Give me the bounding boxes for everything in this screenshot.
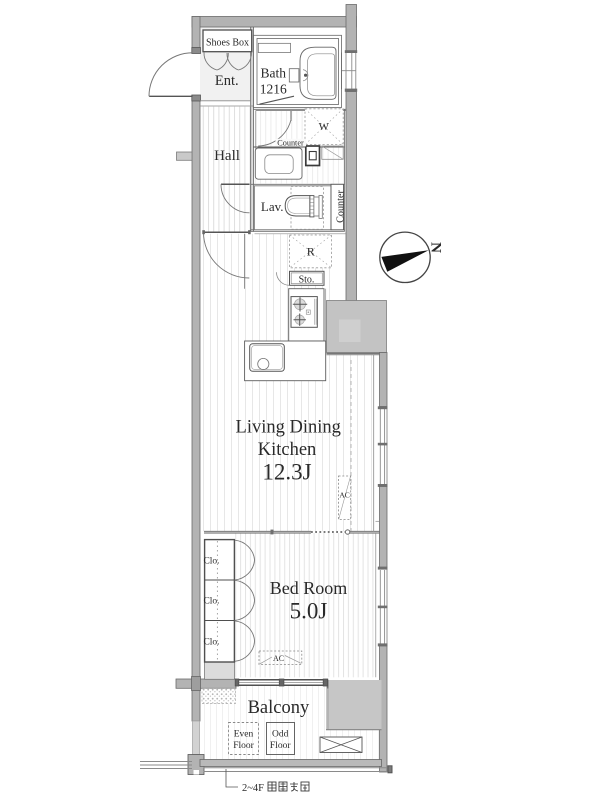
svg-text:AC: AC (273, 654, 284, 663)
svg-text:Even: Even (234, 730, 254, 740)
svg-text:2~4F: 2~4F (242, 783, 264, 794)
svg-text:AC: AC (339, 491, 349, 500)
svg-text:12.3J: 12.3J (262, 460, 311, 485)
svg-text:Balcony: Balcony (248, 698, 310, 718)
svg-text:Lav.: Lav. (261, 199, 284, 214)
svg-text:Hall: Hall (214, 148, 240, 164)
svg-text:Living Dining: Living Dining (236, 418, 341, 438)
svg-text:Ent.: Ent. (215, 73, 239, 89)
svg-text:Clo.: Clo. (203, 597, 219, 607)
svg-text:N: N (428, 242, 444, 253)
svg-text:Clo.: Clo. (203, 557, 219, 567)
svg-text:Counter: Counter (277, 138, 304, 147)
svg-text:Bath: Bath (261, 66, 287, 81)
svg-text:1216: 1216 (260, 82, 287, 97)
svg-text:5.0J: 5.0J (290, 599, 328, 624)
svg-text:Sto.: Sto. (299, 274, 315, 285)
svg-text:Odd: Odd (272, 730, 289, 740)
svg-text:Floor: Floor (270, 741, 291, 751)
svg-text:Kitchen: Kitchen (258, 440, 317, 460)
svg-text:R: R (307, 245, 315, 259)
svg-text:Clo.: Clo. (203, 638, 219, 648)
svg-text:Shoes Box: Shoes Box (206, 38, 249, 49)
svg-text:W: W (319, 121, 330, 133)
svg-text:Counter: Counter (336, 189, 347, 222)
svg-text:Floor: Floor (233, 741, 254, 751)
svg-text:Bed Room: Bed Room (270, 578, 348, 598)
